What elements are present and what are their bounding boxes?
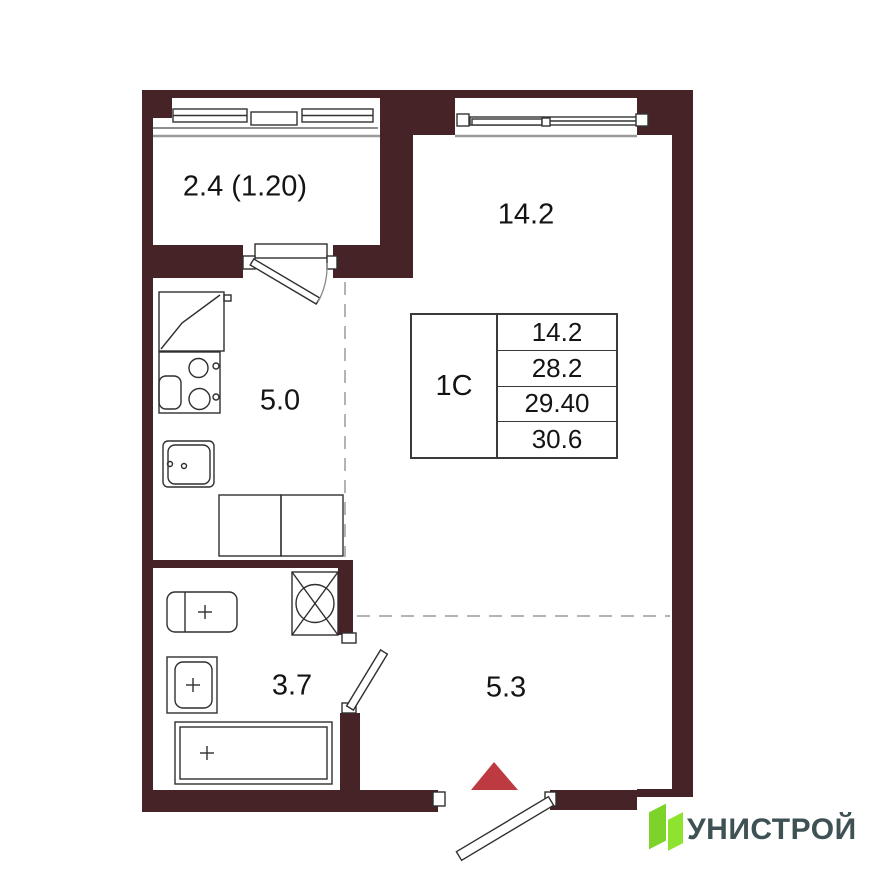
area-value-row: 30.6	[498, 422, 616, 457]
apartment-info-table: 1С 14.2 28.2 29.40 30.6	[410, 313, 618, 459]
entrance-arrow-icon	[471, 762, 518, 790]
living-room-window	[455, 114, 648, 136]
hallway-area-label: 5.3	[486, 672, 526, 705]
balcony-window	[153, 109, 380, 136]
area-value-row: 28.2	[498, 351, 616, 387]
vent-shaft-icon	[292, 572, 338, 635]
area-value-row: 14.2	[498, 315, 616, 351]
unistroy-logo-icon	[649, 804, 666, 850]
bathroom-area-label: 3.7	[272, 670, 312, 703]
bathroom-door	[342, 633, 387, 713]
kitchen-sink-icon	[163, 441, 214, 487]
balcony-door	[243, 244, 337, 304]
apartment-type-cell: 1С	[412, 315, 498, 457]
living-area-label: 14.2	[498, 199, 554, 232]
stove-icon	[159, 352, 220, 413]
unistroy-logo: УНИСТРОЙ	[646, 800, 876, 860]
kitchen-counter	[219, 495, 343, 556]
balcony-area-label: 2.4 (1.20)	[183, 171, 307, 204]
apartment-areas-column: 14.2 28.2 29.40 30.6	[498, 315, 616, 457]
fridge-icon	[159, 292, 231, 351]
area-value-row: 29.40	[498, 387, 616, 423]
washing-machine-icon	[167, 592, 237, 632]
unistroy-logo-icon	[668, 812, 683, 851]
floor-plan: 2.4 (1.20) 14.2 5.0 3.7 5.3 1С 14.2 28.2…	[0, 0, 880, 880]
toilet-icon	[167, 657, 217, 713]
entrance-door	[433, 792, 556, 860]
kitchen-area-label: 5.0	[260, 385, 300, 418]
bathtub-icon	[175, 722, 332, 784]
unistroy-logo-text: УНИСТРОЙ	[687, 813, 857, 847]
